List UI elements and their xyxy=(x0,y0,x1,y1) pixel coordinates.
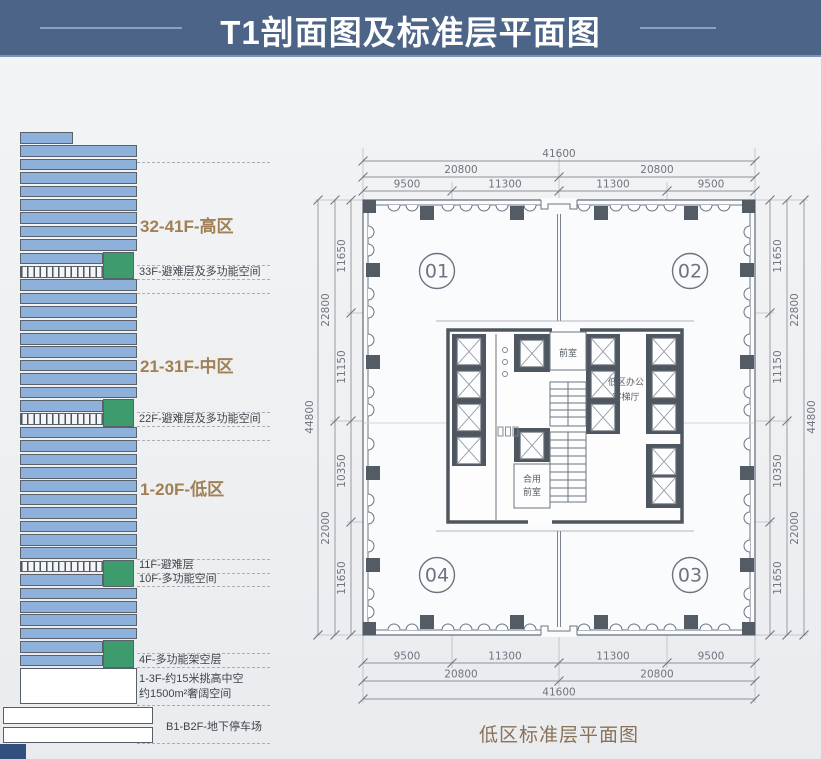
dim-right-bay-1: 11650 xyxy=(772,239,784,272)
presentation-board: T1剖面图及标准层平面图 32-41F-高区 33F-避难层及多功能空间 21-… xyxy=(0,0,821,759)
room-label-front: 前室 xyxy=(559,347,577,359)
elevator-shaft xyxy=(652,371,676,398)
plan-caption: 低区标准层平面图 xyxy=(363,720,755,747)
dim-left-half-2: 22000 xyxy=(320,511,332,544)
elevator-shaft xyxy=(520,432,544,459)
dim-top-bay-2: 11300 xyxy=(488,179,521,191)
elevator-shaft xyxy=(652,448,676,475)
unit-number-01: 01 xyxy=(425,261,449,283)
unit-number-02: 02 xyxy=(678,261,702,283)
room-label-hall-line1: 低区办公 xyxy=(608,376,644,388)
dim-bottom-total: 41600 xyxy=(542,687,575,699)
elevator-shaft xyxy=(457,338,481,365)
dimensions-right: 11650 11150 10350 11650 22800 22000 4480… xyxy=(772,239,818,594)
dim-bottom-bay-4: 9500 xyxy=(698,651,725,663)
dim-left-bay-2: 11150 xyxy=(336,350,348,383)
dim-left-bay-4: 11650 xyxy=(336,561,348,594)
elevator-shaft xyxy=(652,338,676,365)
elevator-shaft xyxy=(591,404,615,431)
dim-top-total: 41600 xyxy=(542,148,575,160)
unit-number-04: 04 xyxy=(425,565,449,587)
elevator-shaft xyxy=(591,338,615,365)
dim-top-bay-3: 11300 xyxy=(596,179,629,191)
dim-right-half-2: 22000 xyxy=(789,511,801,544)
dim-right-total: 44800 xyxy=(806,400,818,433)
dim-bottom-bay-1: 9500 xyxy=(394,651,421,663)
elevator-shaft xyxy=(457,404,481,431)
dim-bottom-half-2: 20800 xyxy=(640,669,673,681)
dim-left-bay-1: 11650 xyxy=(336,239,348,272)
dim-left-bay-3: 10350 xyxy=(336,454,348,487)
dim-bottom-half-1: 20800 xyxy=(444,669,477,681)
dim-top-bay-4: 9500 xyxy=(698,179,725,191)
dim-right-bay-4: 11650 xyxy=(772,561,784,594)
dim-top-half-1: 20800 xyxy=(444,164,477,176)
dim-right-half-1: 22800 xyxy=(789,293,801,326)
dimensions-left: 11650 11150 10350 11650 22800 22000 4480… xyxy=(304,239,348,594)
dim-bottom-bay-3: 11300 xyxy=(596,651,629,663)
dim-left-half-1: 22800 xyxy=(320,293,332,326)
dim-top-bay-1: 9500 xyxy=(394,179,421,191)
service-core: 前室 低区办公 客梯厅 合用 前室 xyxy=(436,321,694,531)
elevator-shaft xyxy=(652,404,676,431)
dim-right-bay-3: 10350 xyxy=(772,454,784,487)
room-label-shared-line2: 前室 xyxy=(523,486,541,498)
elevator-shaft xyxy=(457,371,481,398)
elevator-shaft xyxy=(457,437,481,464)
room-label-shared-line1: 合用 xyxy=(523,473,541,485)
dim-top-half-2: 20800 xyxy=(640,164,673,176)
corner-decor-square xyxy=(0,744,26,759)
unit-number-03: 03 xyxy=(678,565,702,587)
dim-left-total: 44800 xyxy=(304,400,316,433)
dim-right-bay-2: 11150 xyxy=(772,350,784,383)
room-label-hall-line2: 客梯厅 xyxy=(612,391,639,403)
dim-bottom-bay-2: 11300 xyxy=(488,651,521,663)
floor-plan-drawing: 41600 20800 20800 9500 11300 11300 9500 … xyxy=(0,0,821,759)
elevator-shaft xyxy=(520,340,544,367)
elevator-shaft xyxy=(652,477,676,504)
